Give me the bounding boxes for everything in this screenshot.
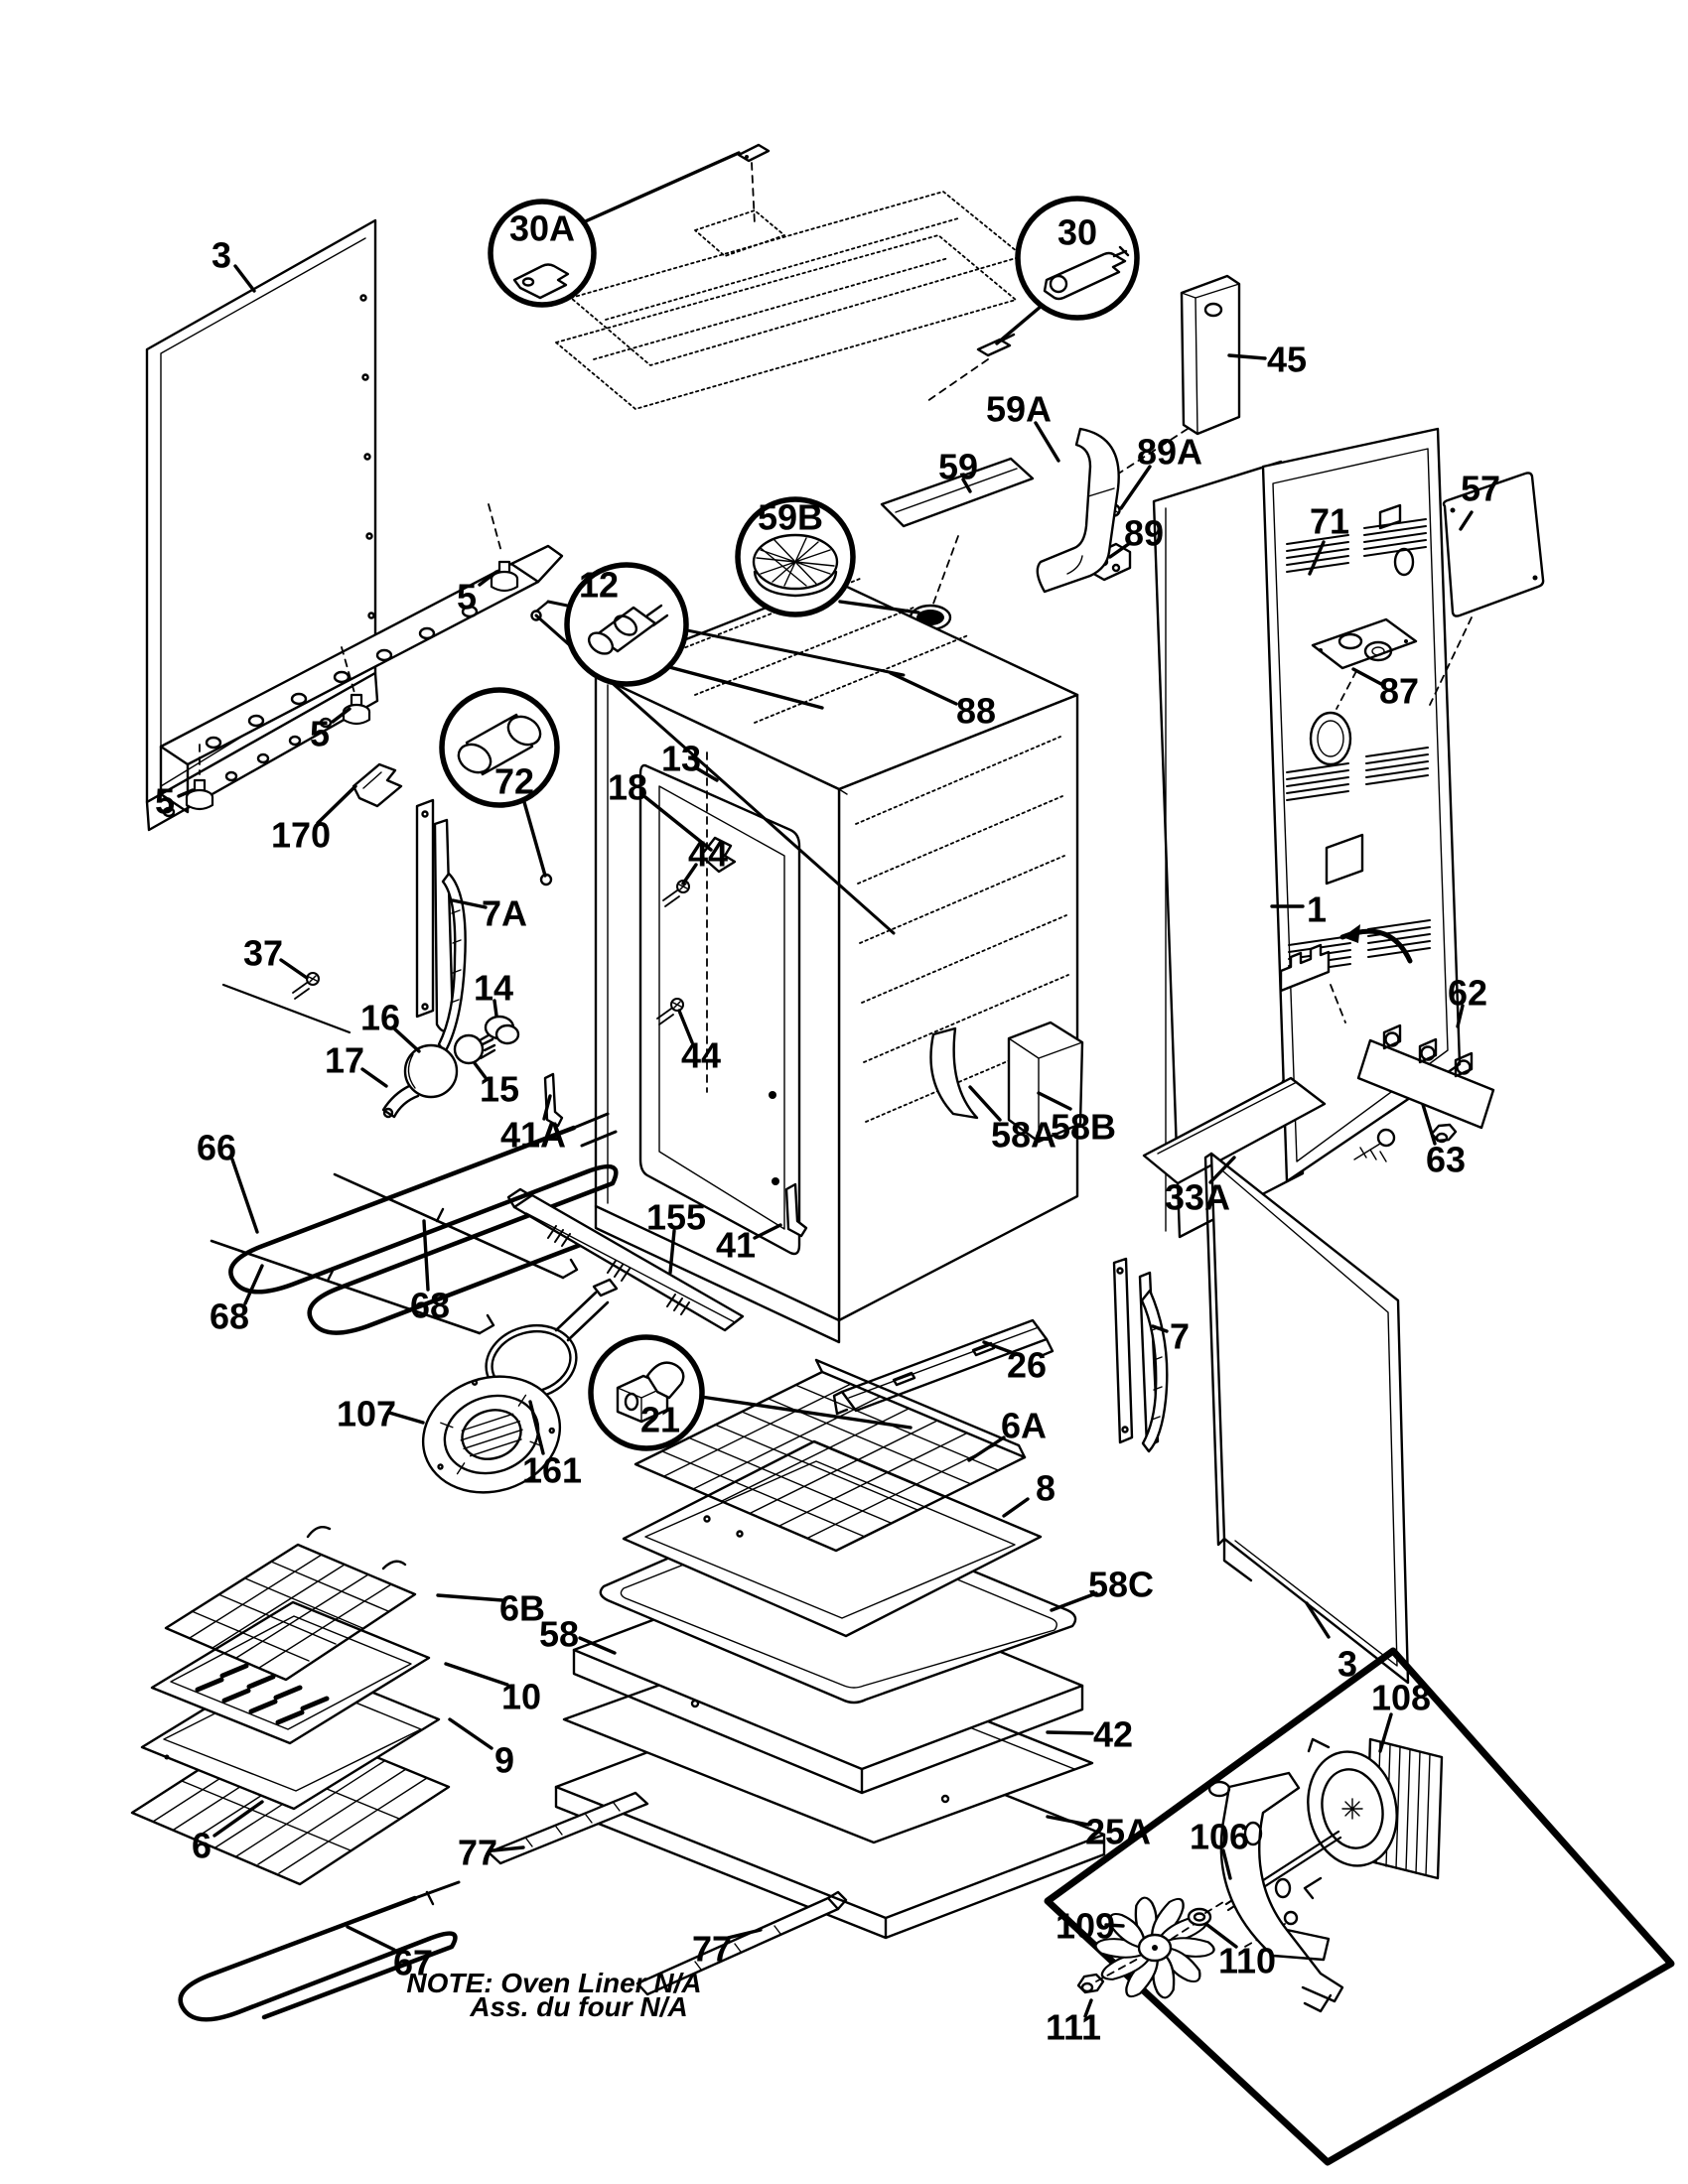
- part-label-7-42: 7: [1170, 1316, 1190, 1357]
- part-label-12-11: 12: [579, 565, 619, 606]
- part-label-30-2: 30: [1057, 212, 1097, 253]
- part-label-72-16: 72: [494, 761, 534, 802]
- part-label-59b-10: 59B: [758, 497, 823, 538]
- part-label-1-22: 1: [1307, 889, 1327, 930]
- part-label-21-45: 21: [640, 1400, 680, 1440]
- part-label-89a-6: 89A: [1137, 432, 1202, 473]
- part-label-59-5: 59: [938, 447, 978, 487]
- part-label-109-62: 109: [1055, 1906, 1115, 1947]
- part-label-155-36: 155: [646, 1197, 706, 1238]
- part-label-62-28: 62: [1448, 973, 1487, 1014]
- part-label-66-33: 66: [197, 1128, 236, 1168]
- part-label-41-37: 41: [716, 1225, 756, 1266]
- part-label-57-9: 57: [1461, 469, 1500, 509]
- part-label-3-0: 3: [211, 235, 231, 276]
- part-label-18-15: 18: [608, 767, 647, 808]
- part-label-170-20: 170: [271, 815, 331, 856]
- part-label-6-55: 6: [192, 1826, 211, 1866]
- part-label-44-32: 44: [681, 1035, 721, 1076]
- part-label-33a-40: 33A: [1165, 1177, 1230, 1218]
- part-label-71-8: 71: [1310, 501, 1349, 542]
- part-label-111-64: 111: [1046, 2007, 1101, 2048]
- part-label-14-24: 14: [474, 968, 513, 1009]
- note-line-2: Ass. du four N/A: [469, 1991, 687, 2022]
- part-label-108-60: 108: [1371, 1678, 1431, 1718]
- part-label-58b-39: 58B: [1051, 1107, 1116, 1148]
- part-label-77-56: 77: [458, 1833, 497, 1873]
- part-label-87-13: 87: [1379, 671, 1419, 712]
- part-label-45-3: 45: [1267, 340, 1307, 380]
- part-label-15-27: 15: [480, 1069, 519, 1110]
- part-label-58c-48: 58C: [1088, 1565, 1154, 1605]
- part-label-58a-38: 58A: [991, 1115, 1056, 1156]
- part-label-17-26: 17: [325, 1040, 364, 1081]
- exploded-parts-diagram: 330A304559A5989A89715759B128887131872555…: [0, 0, 1688, 2184]
- part-label-6a-46: 6A: [1001, 1406, 1047, 1446]
- part-label-26-41: 26: [1007, 1345, 1047, 1386]
- part-label-10-51: 10: [501, 1677, 541, 1717]
- part-label-8-47: 8: [1036, 1468, 1055, 1509]
- part-label-107-43: 107: [337, 1394, 396, 1434]
- leader-42-53: [1048, 1732, 1092, 1733]
- part-label-25a-54: 25A: [1085, 1812, 1151, 1852]
- part-label-3-59: 3: [1337, 1644, 1357, 1685]
- part-label-30a-1: 30A: [509, 208, 575, 249]
- part-label-161-44: 161: [522, 1450, 582, 1491]
- part-label-63-29: 63: [1426, 1140, 1466, 1180]
- part-label-6b-50: 6B: [499, 1588, 545, 1629]
- part-label-89-7: 89: [1124, 513, 1164, 554]
- part-label-5-19: 5: [155, 781, 175, 822]
- part-label-7a-21: 7A: [482, 893, 527, 934]
- part-label-41a-30: 41A: [500, 1115, 566, 1156]
- part-label-5-17: 5: [457, 577, 477, 617]
- part-label-16-25: 16: [360, 998, 400, 1038]
- part-label-110-63: 110: [1218, 1941, 1276, 1981]
- part-label-42-53: 42: [1093, 1714, 1133, 1755]
- part-label-68-34: 68: [210, 1297, 249, 1337]
- part-label-68-35: 68: [410, 1286, 450, 1326]
- part-label-37-23: 37: [243, 933, 283, 974]
- diagram-canvas: 330A304559A5989A89715759B128887131872555…: [0, 0, 1688, 2184]
- part-label-88-12: 88: [956, 691, 996, 732]
- part-label-9-52: 9: [494, 1740, 514, 1781]
- part-label-44-31: 44: [688, 834, 728, 875]
- part-label-59a-4: 59A: [986, 389, 1052, 430]
- part-label-106-61: 106: [1190, 1817, 1249, 1857]
- part-label-77-57: 77: [692, 1929, 732, 1970]
- part-label-13-14: 13: [661, 739, 701, 779]
- part-label-5-18: 5: [310, 714, 330, 754]
